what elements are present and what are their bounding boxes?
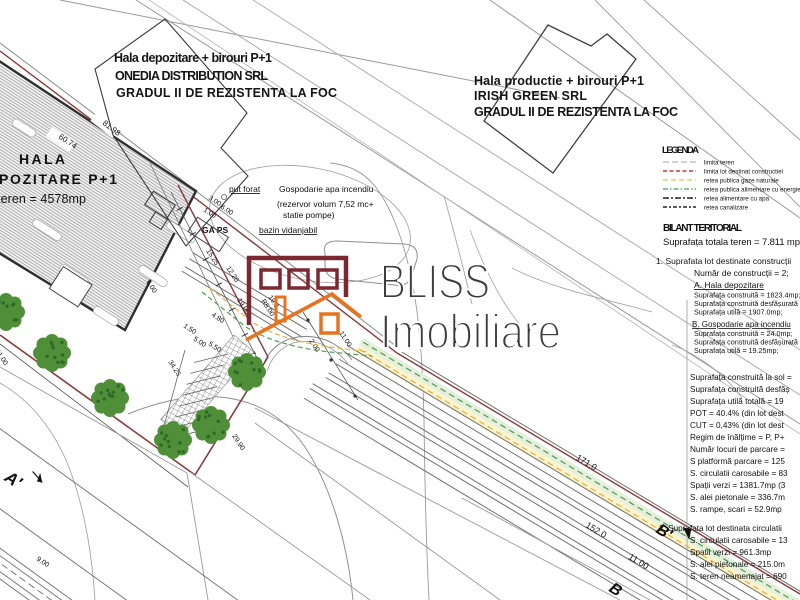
- svg-text:IRISH GREEN SRL: IRISH GREEN SRL: [474, 89, 587, 103]
- svg-text:BILANT TERITORIAL: BILANT TERITORIAL: [663, 223, 742, 234]
- svg-text:retea publica alimentare cu en: retea publica alimentare cu energie: [704, 187, 800, 194]
- svg-text:Număr locuri de parcare =: Număr locuri de parcare =: [690, 445, 785, 454]
- svg-text:S. teren neamenajat = 690: S. teren neamenajat = 690: [690, 572, 787, 581]
- svg-text:retea canalizare: retea canalizare: [704, 205, 749, 212]
- svg-text:Suprafața construită la sol =: Suprafața construită la sol =: [690, 373, 792, 382]
- svg-text:Suprafața construită desfăș: Suprafața construită desfăș: [690, 385, 790, 394]
- svg-text:Suprafața totala teren = 7.811: Suprafața totala teren = 7.811 mp: [663, 237, 800, 248]
- svg-text:limita lot destinat constructi: limita lot destinat constructiei: [704, 169, 783, 176]
- svg-text:retea alimentare cu apa: retea alimentare cu apa: [704, 196, 770, 203]
- svg-text:Spatii verzi = 961.3mp: Spatii verzi = 961.3mp: [690, 548, 772, 557]
- svg-text:S. circulatii carosabile = 83: S. circulatii carosabile = 83: [690, 469, 788, 478]
- svg-text:POT = 40.4% (din lot dest: POT = 40.4% (din lot dest: [690, 409, 785, 418]
- svg-text:Suprafața utilă = 1907.0mp;: Suprafața utilă = 1907.0mp;: [694, 308, 783, 317]
- svg-text:ONEDIA DISTRIBUTION SRL: ONEDIA DISTRIBUTION SRL: [115, 69, 268, 83]
- svg-text:bazin vidanjabil: bazin vidanjabil: [259, 225, 317, 235]
- svg-text:S platformă parcare = 125: S platformă parcare = 125: [690, 457, 785, 466]
- svg-text:LEGENDA: LEGENDA: [662, 145, 699, 156]
- svg-text:teren = 4578mp: teren = 4578mp: [0, 192, 86, 206]
- svg-text:Număr de construcții = 2;: Număr de construcții = 2;: [694, 268, 789, 278]
- svg-text:Imobiliare: Imobiliare: [380, 306, 561, 359]
- svg-text:GRADUL II DE REZISTENTA LA FOC: GRADUL II DE REZISTENTA LA FOC: [116, 86, 337, 100]
- svg-text:B. Gospodarie apa incendiu: B. Gospodarie apa incendiu: [692, 320, 791, 329]
- svg-text:A. Hala depozitare: A. Hala depozitare: [694, 280, 764, 290]
- svg-text:GA PS: GA PS: [202, 225, 228, 235]
- svg-text:S. circulatii carosabile = 13: S. circulatii carosabile = 13: [690, 536, 788, 545]
- svg-text:statie pompe): statie pompe): [283, 210, 335, 220]
- svg-text:Spații verzi = 1381.7mp (3: Spații verzi = 1381.7mp (3: [690, 481, 786, 490]
- svg-text:S. rampe, scari = 52.9mp: S. rampe, scari = 52.9mp: [690, 505, 782, 514]
- svg-text:Suprafața utilă = 19.25mp;: Suprafața utilă = 19.25mp;: [694, 346, 779, 355]
- svg-text:BLISS: BLISS: [380, 256, 490, 309]
- svg-text:put forat: put forat: [229, 184, 261, 194]
- svg-text:S. alei pietonale = 215.0m: S. alei pietonale = 215.0m: [690, 560, 785, 569]
- svg-text:CUT = 0,43% (din lot dest: CUT = 0,43% (din lot dest: [690, 421, 785, 430]
- svg-text:Gospodarie apa incendiu: Gospodarie apa incendiu: [279, 184, 374, 194]
- svg-text:2. Suprafata lot destinata cir: 2. Suprafata lot destinata circulatii: [659, 524, 782, 533]
- svg-text:(rezervor volum 7,52 mc+: (rezervor volum 7,52 mc+: [277, 199, 374, 209]
- svg-text:retea publica gaze naturale: retea publica gaze naturale: [704, 178, 779, 185]
- svg-text:Hala depozitare + birouri P+1: Hala depozitare + birouri P+1: [114, 51, 272, 65]
- svg-text:S. alei pietonale = 336.7m: S. alei pietonale = 336.7m: [690, 493, 785, 502]
- svg-text:GRADUL II DE REZISTENTA LA FOC: GRADUL II DE REZISTENTA LA FOC: [474, 105, 678, 119]
- svg-text:limita teren: limita teren: [704, 160, 735, 167]
- svg-text:Suprafața utilă totală = 19: Suprafața utilă totală = 19: [690, 397, 784, 406]
- svg-text:Hala productie + birouri P+1: Hala productie + birouri P+1: [474, 74, 644, 88]
- svg-text:Regim de înălțime = P, P+: Regim de înălțime = P, P+: [690, 433, 785, 442]
- svg-text:1. Suprafata lot destinate con: 1. Suprafata lot destinate construcții: [656, 256, 791, 266]
